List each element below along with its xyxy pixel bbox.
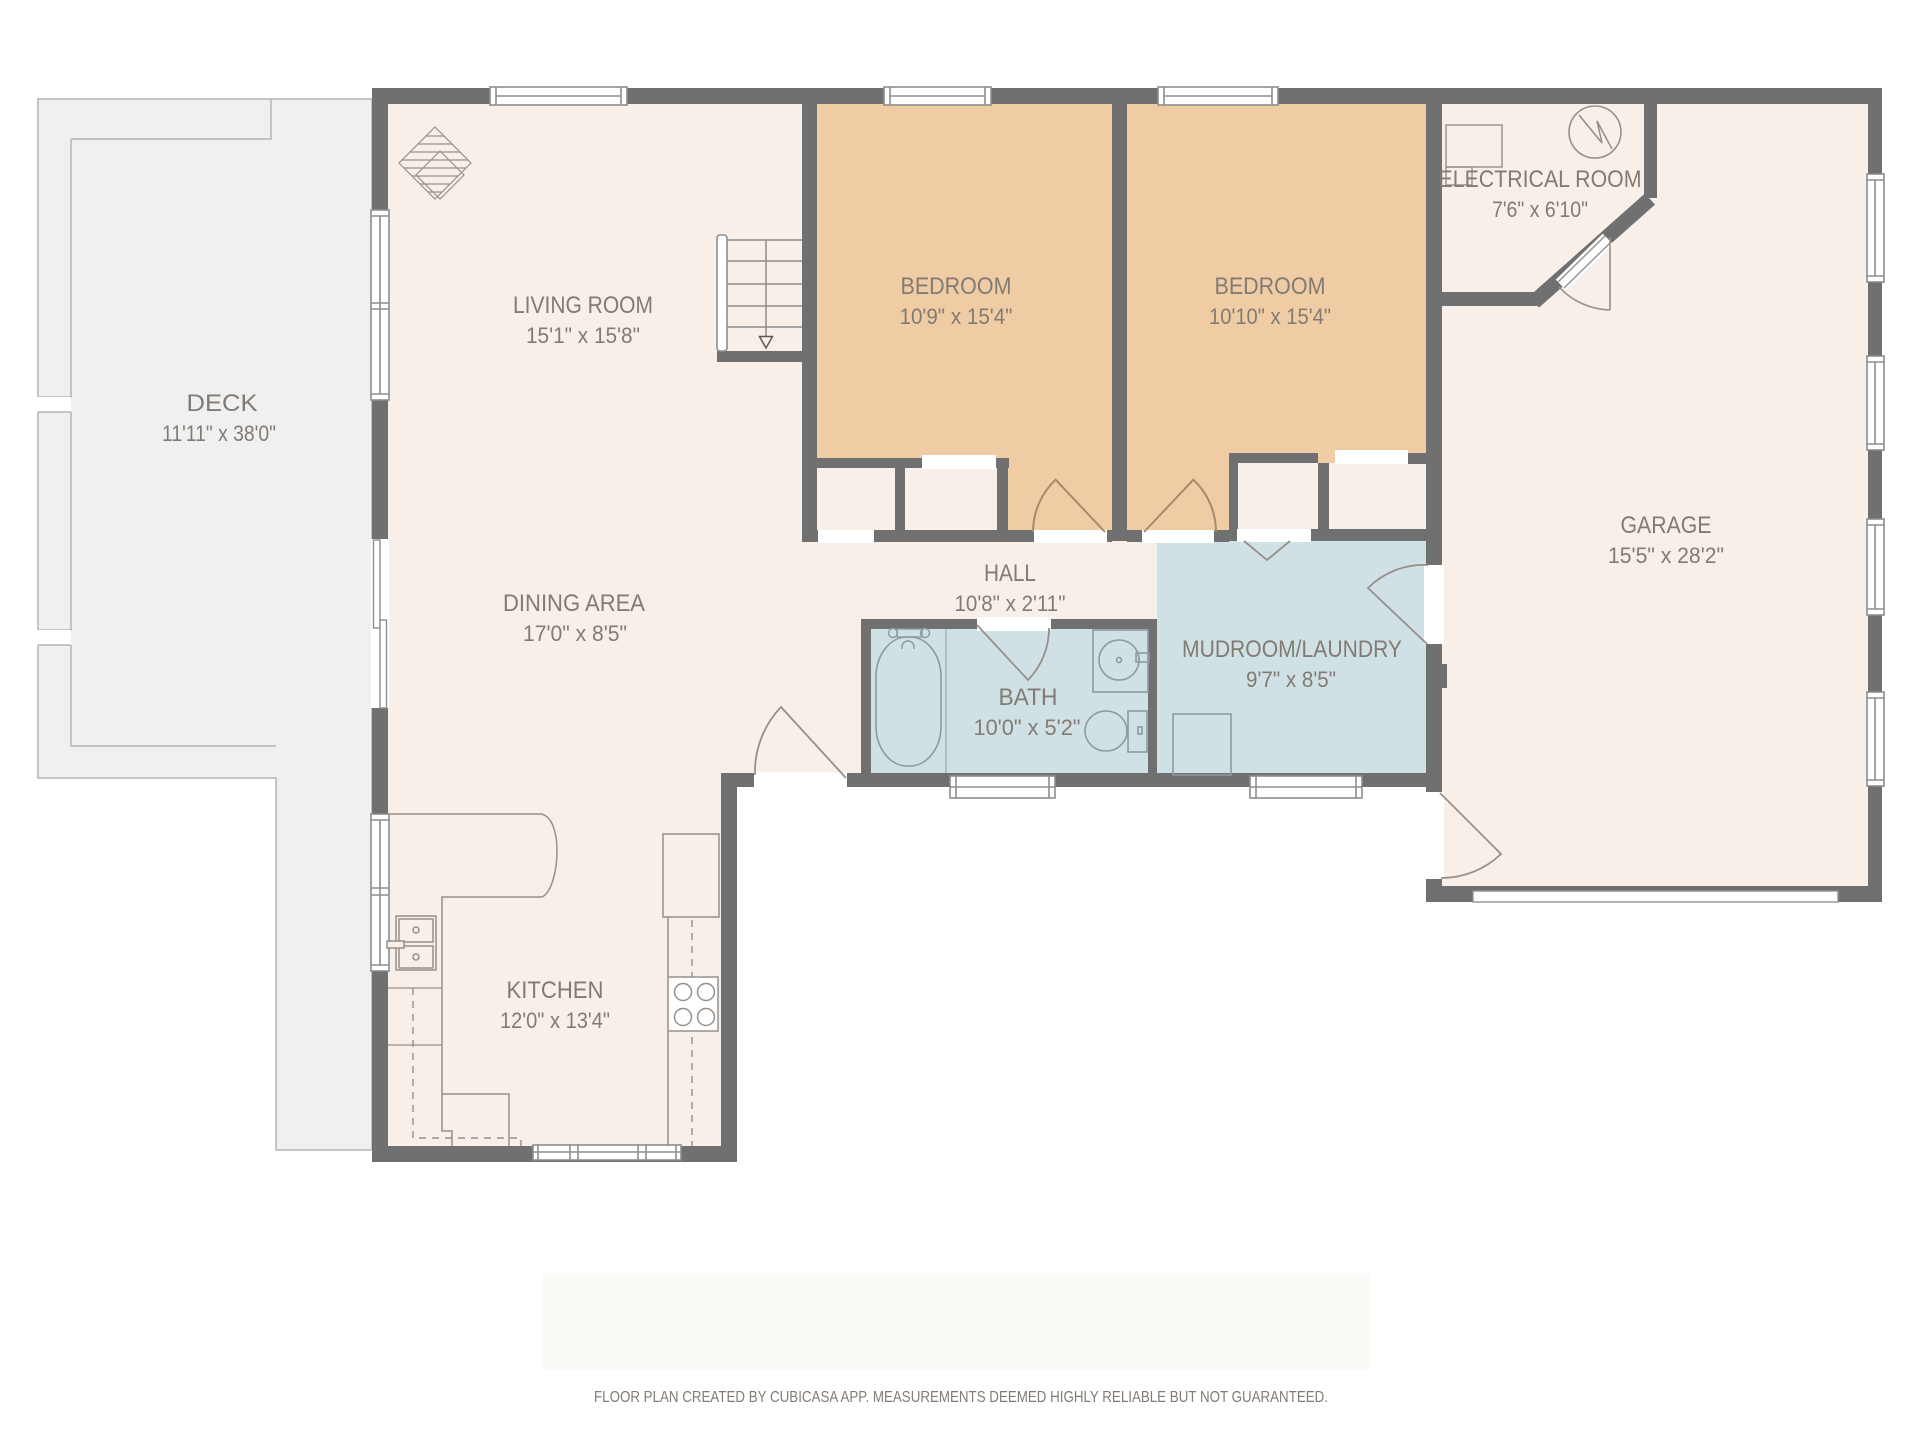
svg-text:9'7" x 8'5": 9'7" x 8'5": [1246, 667, 1336, 692]
svg-text:BEDROOM: BEDROOM: [1215, 273, 1326, 300]
svg-text:BATH: BATH: [999, 684, 1058, 711]
svg-text:10'10" x 15'4": 10'10" x 15'4": [1209, 304, 1331, 329]
svg-text:12'0" x 13'4": 12'0" x 13'4": [500, 1008, 610, 1033]
svg-text:HALL: HALL: [984, 560, 1036, 587]
svg-text:GARAGE: GARAGE: [1621, 512, 1712, 539]
svg-text:10'8" x 2'11": 10'8" x 2'11": [955, 591, 1066, 616]
svg-text:ELECTRICAL ROOM: ELECTRICAL ROOM: [1439, 166, 1642, 193]
svg-text:KITCHEN: KITCHEN: [507, 977, 604, 1004]
svg-text:10'9" x 15'4": 10'9" x 15'4": [900, 304, 1013, 329]
svg-text:DECK: DECK: [187, 390, 258, 417]
svg-text:DINING AREA: DINING AREA: [503, 590, 645, 617]
svg-text:17'0" x 8'5": 17'0" x 8'5": [523, 621, 627, 646]
svg-text:MUDROOM/LAUNDRY: MUDROOM/LAUNDRY: [1182, 636, 1402, 663]
svg-text:15'1" x 15'8": 15'1" x 15'8": [526, 323, 640, 348]
svg-text:15'5" x 28'2": 15'5" x 28'2": [1608, 543, 1724, 568]
svg-text:10'0" x 5'2": 10'0" x 5'2": [974, 715, 1081, 740]
svg-text:BEDROOM: BEDROOM: [901, 273, 1012, 300]
svg-text:FLOOR PLAN CREATED BY CUBICASA: FLOOR PLAN CREATED BY CUBICASA APP. MEAS…: [594, 1389, 1328, 1406]
svg-text:LIVING ROOM: LIVING ROOM: [513, 292, 653, 319]
svg-text:11'11" x 38'0": 11'11" x 38'0": [162, 421, 276, 446]
svg-text:7'6" x 6'10": 7'6" x 6'10": [1492, 197, 1588, 222]
